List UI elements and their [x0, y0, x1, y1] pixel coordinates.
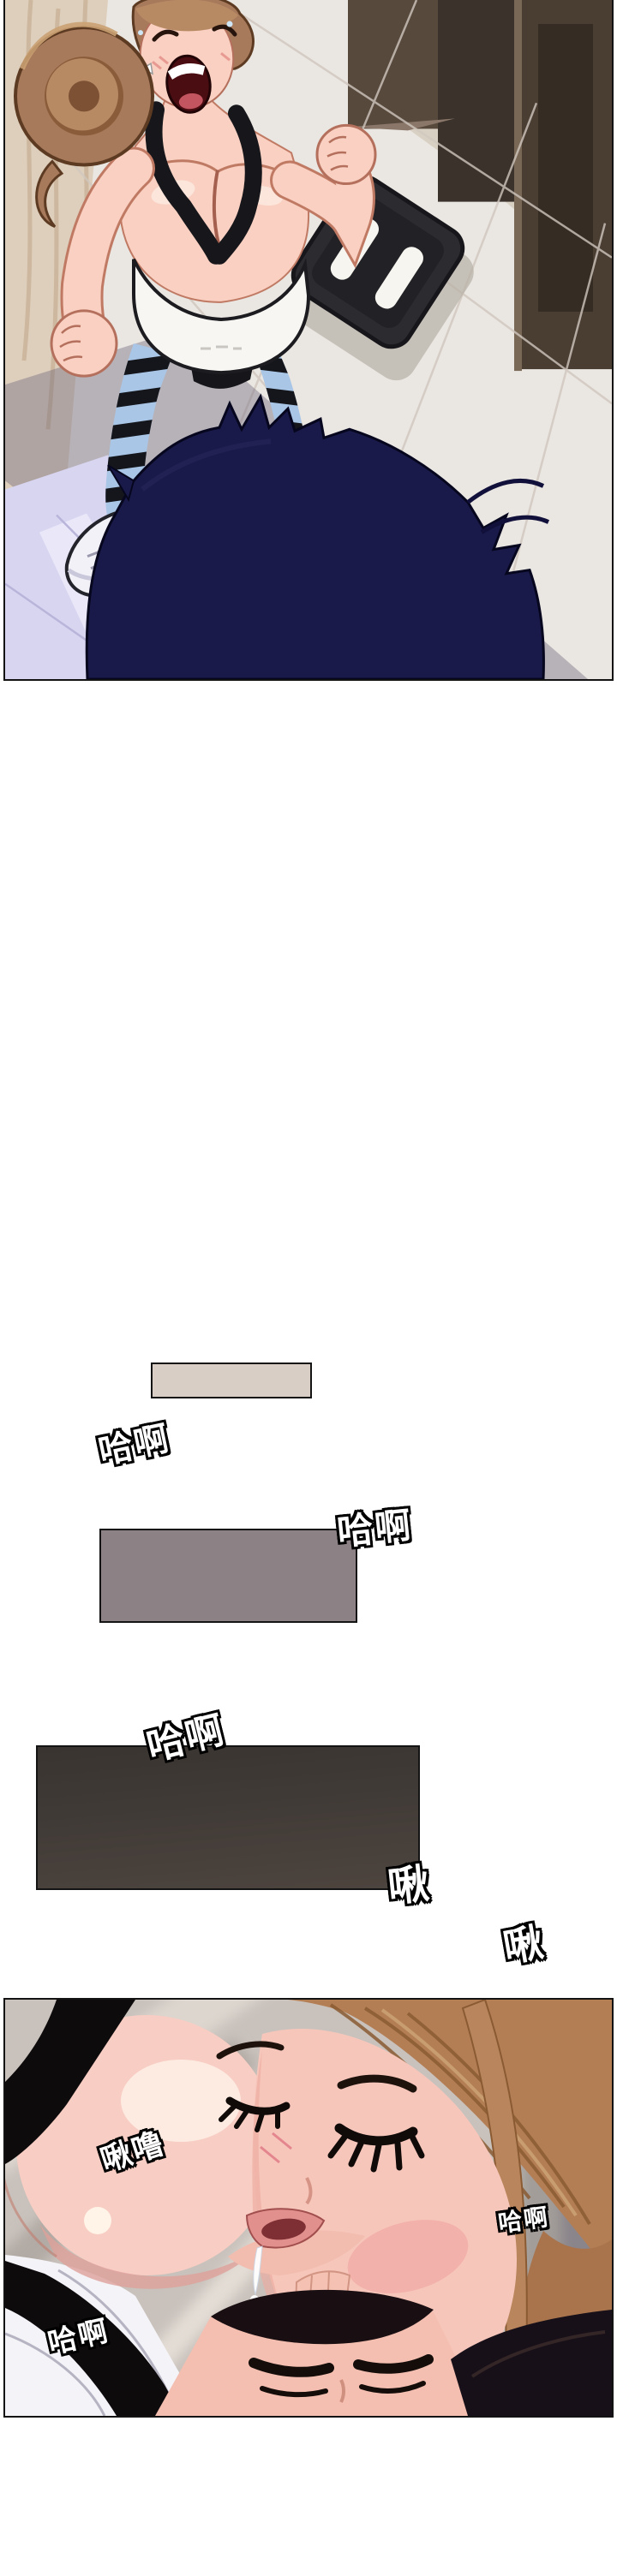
censor-bar-large [36, 1745, 420, 1890]
webtoon-page: { "page": { "type": "webtoon-episode-str… [0, 0, 617, 2576]
gym-scene-art [5, 0, 612, 679]
sfx-kiss-2: 啾 [499, 1911, 549, 1973]
sfx-breath-top: 哈啊 [93, 1410, 174, 1474]
fist-right [317, 125, 375, 183]
fist-left [51, 311, 117, 376]
sweat-drop [138, 30, 143, 35]
censor-bar-medium [99, 1529, 357, 1623]
censor-bar-small [151, 1363, 312, 1398]
sfx-kiss-1: 啾 [384, 1850, 433, 1914]
comic-panel-gym-scene [3, 0, 614, 681]
shine-spot [84, 2207, 111, 2234]
sweat-drop [227, 21, 233, 27]
sfx-breath-panel2-right: 哈啊 [496, 2198, 552, 2239]
sfx-breath-mid: 哈啊 [334, 1496, 415, 1556]
